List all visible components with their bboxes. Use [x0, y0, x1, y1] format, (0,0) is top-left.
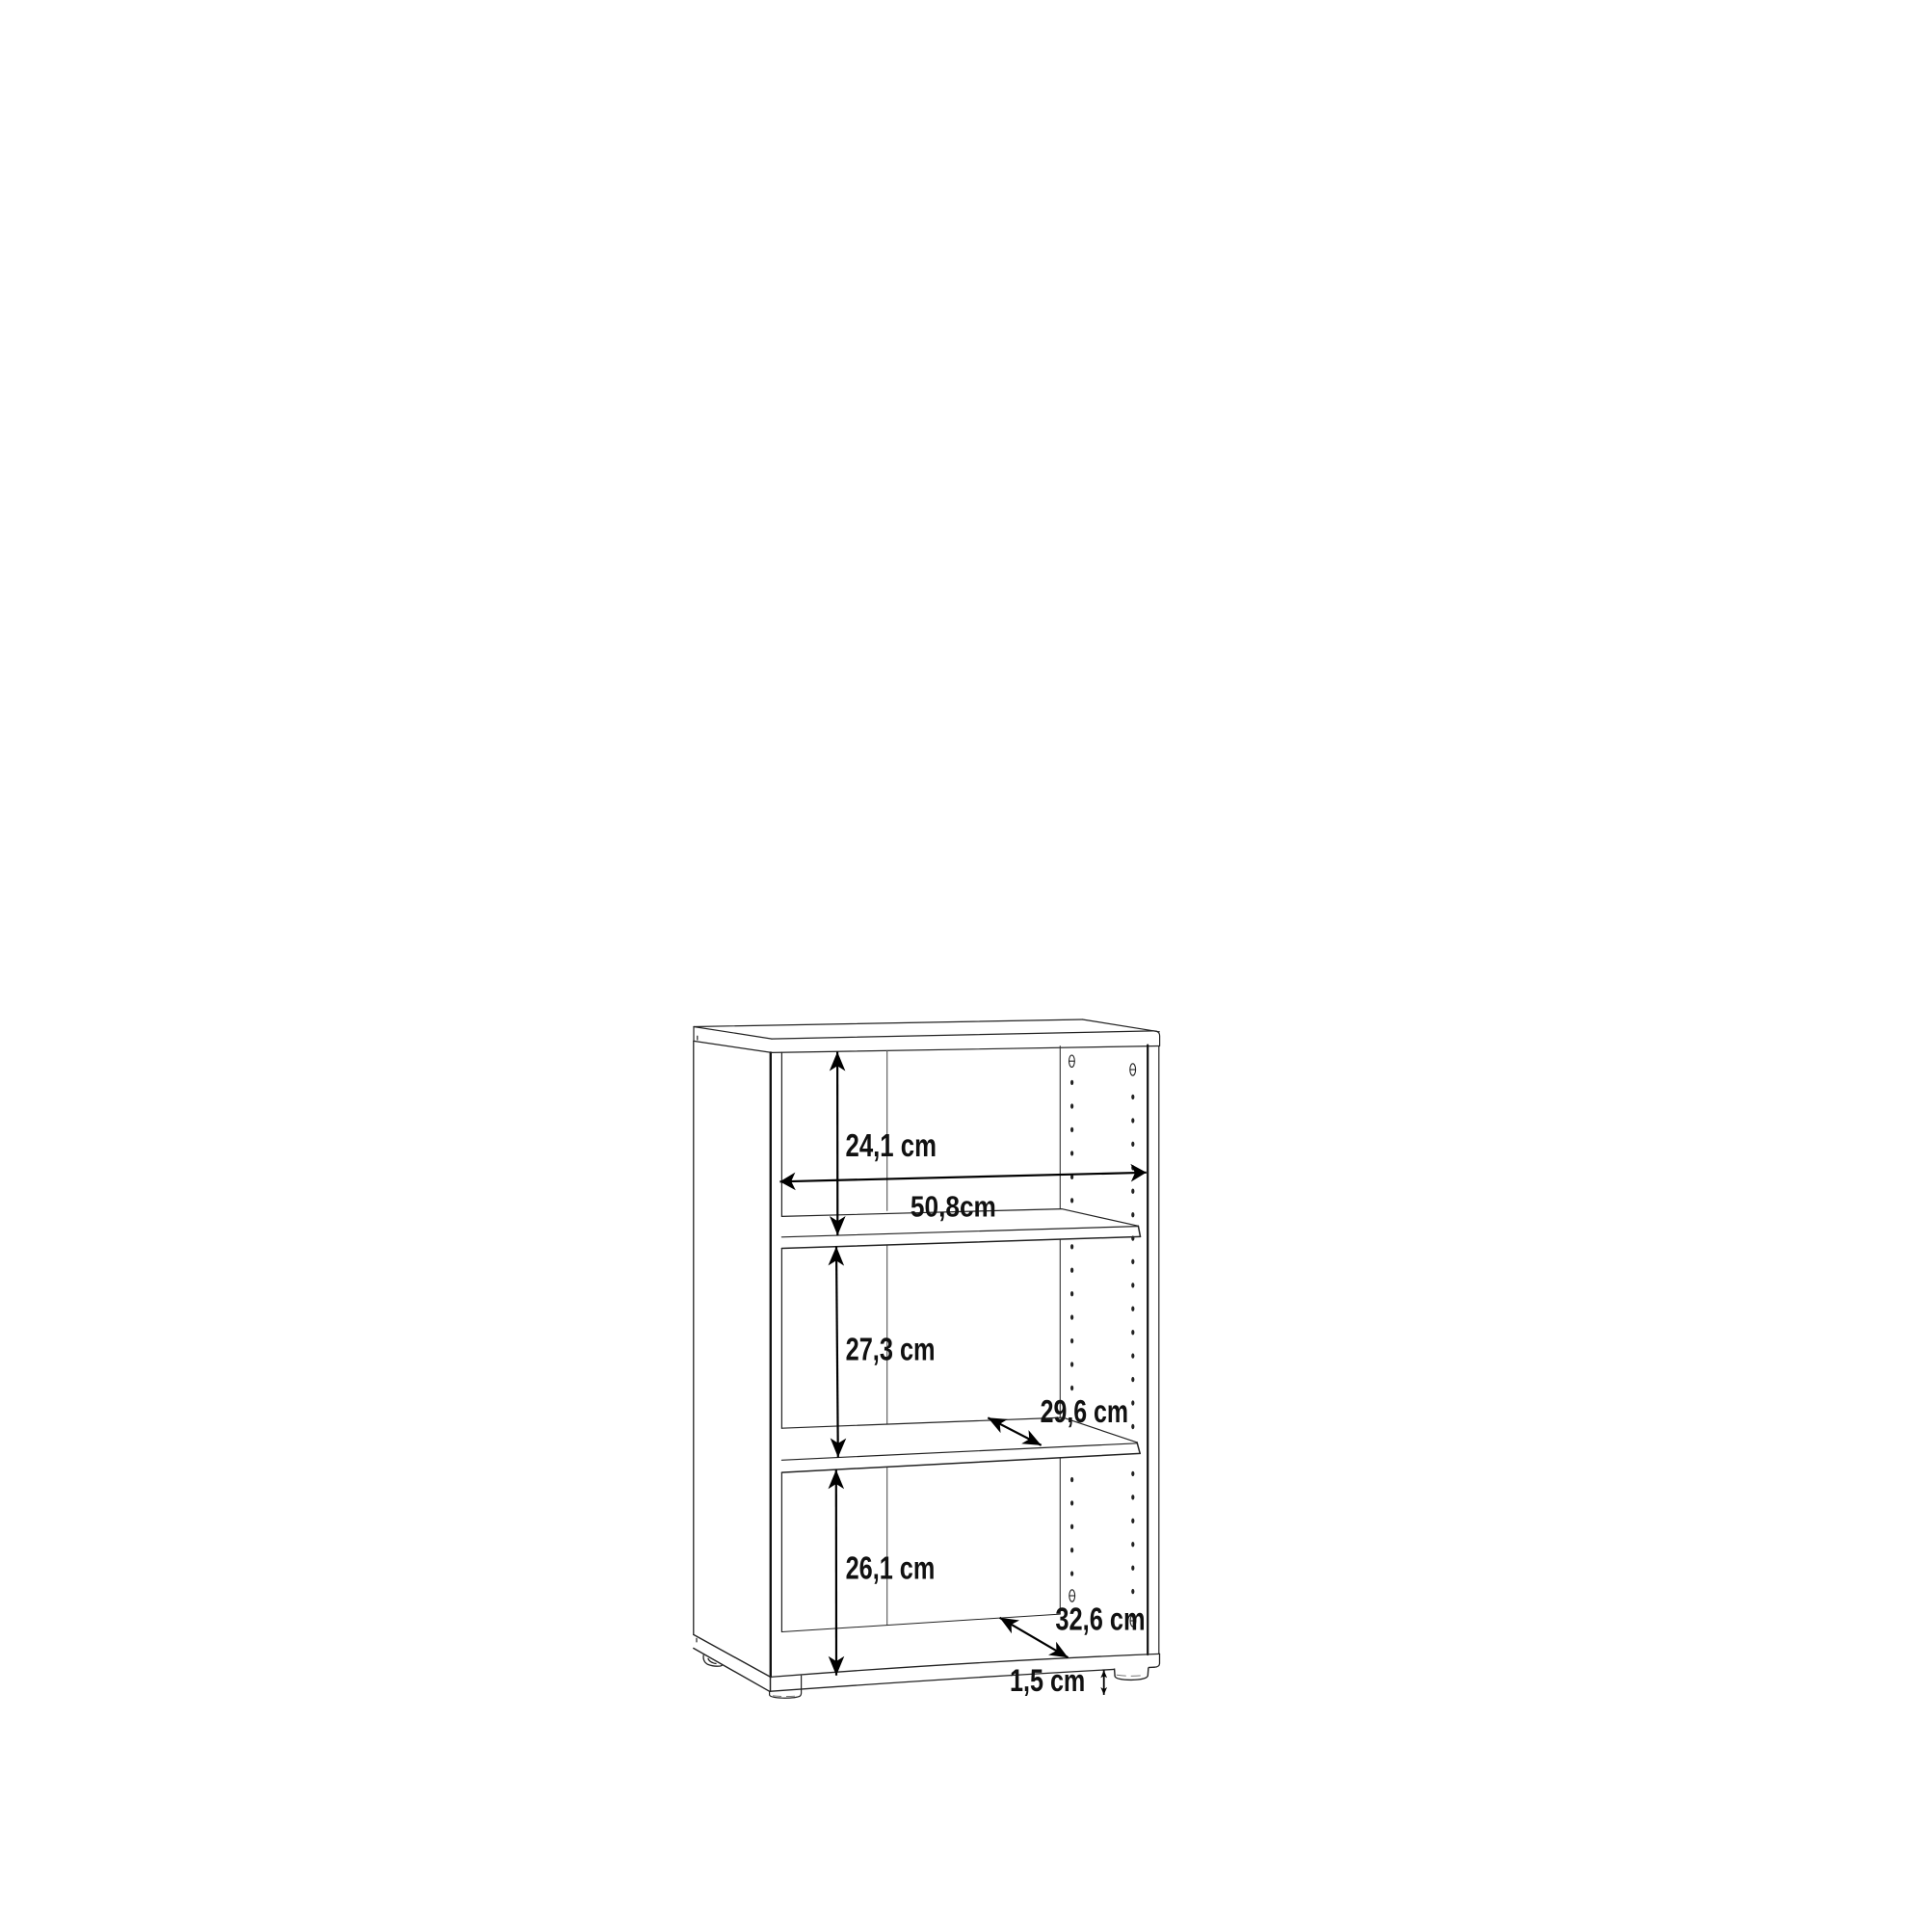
svg-text:29,6 cm: 29,6 cm [1041, 1393, 1129, 1429]
svg-text:1,5 cm: 1,5 cm [1010, 1663, 1085, 1698]
svg-text:50,8cm: 50,8cm [911, 1189, 996, 1223]
svg-text:26,1 cm: 26,1 cm [846, 1549, 936, 1585]
svg-text:27,3 cm: 27,3 cm [846, 1332, 936, 1367]
svg-text:24,1 cm: 24,1 cm [846, 1127, 937, 1163]
svg-text:32,6 cm: 32,6 cm [1055, 1602, 1145, 1638]
